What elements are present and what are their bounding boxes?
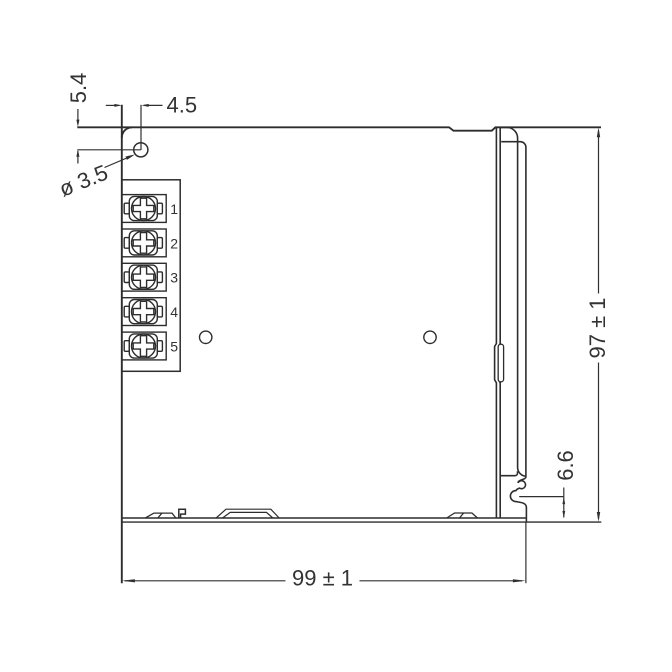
svg-text:99 ± 1: 99 ± 1 xyxy=(292,565,353,590)
svg-text:4.5: 4.5 xyxy=(167,93,198,118)
svg-text:97 ± 1: 97 ± 1 xyxy=(585,297,610,358)
svg-text:3: 3 xyxy=(170,270,178,286)
svg-text:2: 2 xyxy=(170,235,178,251)
svg-text:5.4: 5.4 xyxy=(66,73,91,104)
svg-text:1: 1 xyxy=(170,201,178,217)
svg-text:6.6: 6.6 xyxy=(553,450,578,481)
svg-text:5: 5 xyxy=(170,339,178,355)
svg-text:4: 4 xyxy=(170,304,178,320)
